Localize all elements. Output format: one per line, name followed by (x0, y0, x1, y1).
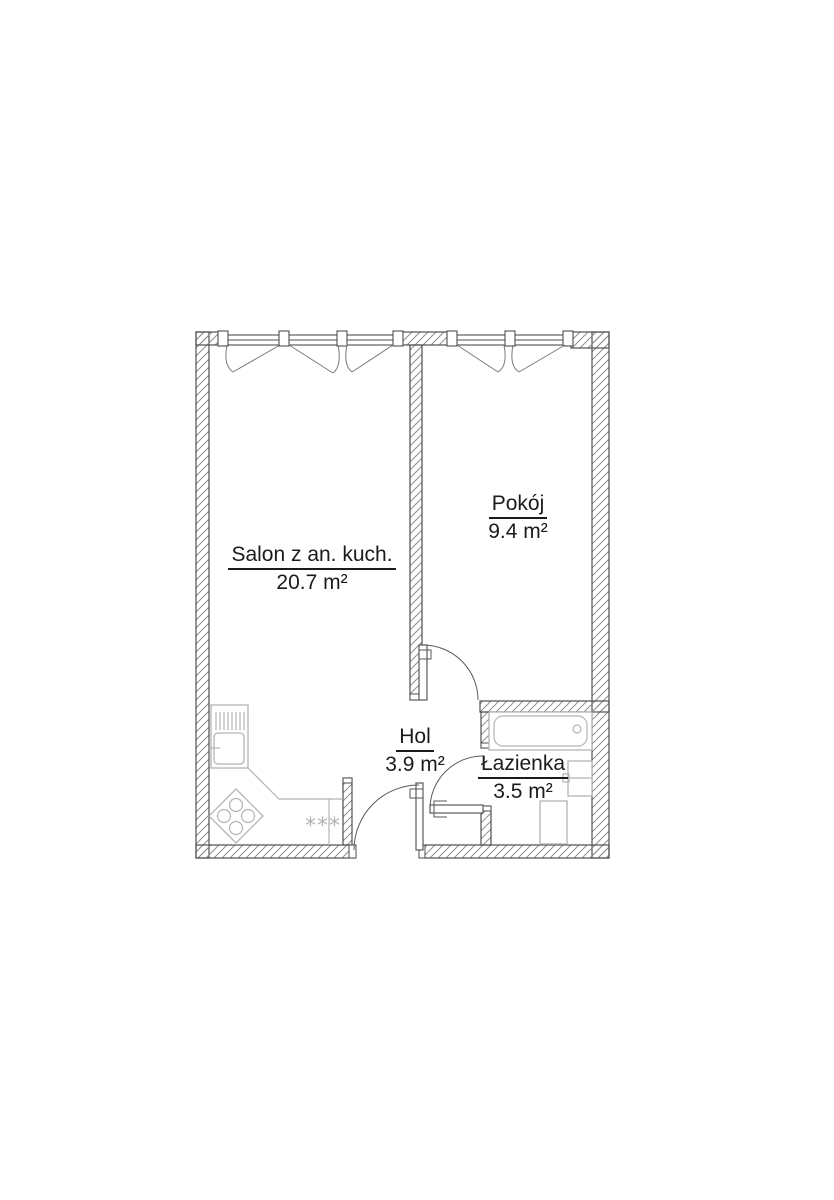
kitchen-stub-cap (343, 778, 352, 783)
window-mullion (393, 331, 403, 346)
entrance-jamb-left (349, 845, 356, 858)
wall-kitchen-stub (343, 778, 352, 845)
washing-machine (540, 801, 567, 844)
casement-opening-symbol (457, 345, 565, 372)
room-area: 9.4 m² (438, 520, 598, 544)
window-mullion (218, 331, 228, 346)
door-leaf (416, 783, 423, 850)
wall-bathroom-top (480, 701, 609, 712)
room-name: Salon z an. kuch. (228, 543, 395, 570)
window-mullion (279, 331, 289, 346)
wall-bottom-left (196, 845, 355, 858)
room-name: Pokój (489, 492, 548, 519)
door-swing-arc (354, 785, 419, 850)
bathtub (489, 712, 592, 750)
floor-plan: *** Salon z an. kuch. 20.7 m² Pokój 9.4 … (0, 0, 834, 1200)
wall-top-mid-pier (399, 332, 452, 345)
casement-opening-symbol (226, 345, 393, 373)
room-label-salon: Salon z an. kuch. 20.7 m² (192, 543, 432, 594)
room-label-lazienka: Łazienka 3.5 m² (443, 752, 603, 803)
room-name: Hol (396, 725, 434, 752)
window-mullion (447, 331, 457, 346)
room-name: Łazienka (478, 752, 568, 779)
floor-plan-drawing: *** (0, 0, 834, 1200)
wall-bottom-right (424, 845, 609, 858)
door-leaf (430, 805, 483, 813)
entrance-door (354, 783, 423, 850)
kitchen-unit: *** (209, 705, 343, 845)
window-mullion (505, 331, 515, 346)
room-area: 3.5 m² (443, 780, 603, 804)
window-mullion (563, 331, 573, 346)
wall-top-right-pier (571, 332, 609, 348)
salon-window (218, 331, 403, 373)
door-leaf (419, 645, 427, 700)
pokoj-window (447, 331, 573, 372)
kitchen-marking: *** (305, 814, 341, 839)
wall-left (196, 332, 209, 858)
window-mullion (337, 331, 347, 346)
room-area: 20.7 m² (192, 571, 432, 595)
pokoj-door (419, 645, 478, 700)
room-label-pokoj: Pokój 9.4 m² (438, 492, 598, 543)
